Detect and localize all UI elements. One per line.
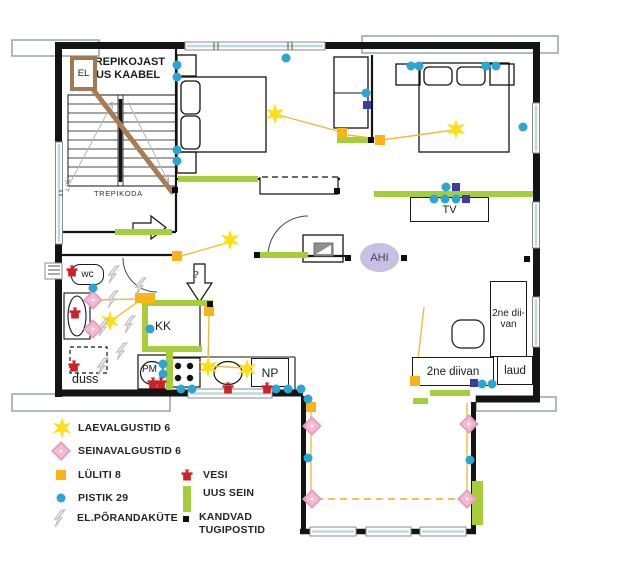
legend-new-wall-icon [183, 486, 191, 512]
sofa-bottom: 2ne diivan [412, 357, 494, 386]
room-label-kk: KK [155, 319, 171, 333]
legend-label-floor-heating: EL.PÕRANDAKÜTE [77, 512, 178, 525]
wiring-lines [97, 114, 467, 499]
stair-dimension: 4.85 [65, 179, 72, 192]
room-label-wc: wc [71, 264, 104, 285]
furniture [64, 55, 514, 390]
legend-label-new-wall: UUS SEIN [203, 487, 254, 500]
legend-label-posts: KANDVAD TUGIPOSTID [199, 511, 265, 537]
tv-cabinet: TV [410, 197, 489, 222]
legend-label-water: VESI [203, 469, 228, 482]
appliance-label-pm: PM [142, 364, 157, 375]
room-label-duss: duss [72, 372, 98, 386]
legend-label-ceiling-lights: LAEVALGUSTID 6 [78, 422, 170, 435]
sofa-side: 2ne dii- van [490, 281, 527, 357]
appliance-label-np: NP [251, 358, 289, 387]
legend-label-switches: LÜLITI 8 [78, 469, 121, 482]
floor-plan: TREPIKOJAST UUS KAABEL EL TREPIKODA 4.85… [0, 0, 634, 561]
table-laud: laud [497, 356, 533, 385]
question-mark: ? [193, 270, 199, 281]
new-walls [115, 137, 533, 525]
stove-ahi: AHI [360, 243, 399, 272]
room-label-trepikoda: TREPIKODA [94, 189, 143, 198]
legend-label-wall-lights: SEINAVALGUSTID 6 [78, 445, 181, 458]
legend-label-sockets: PISTIK 29 [78, 492, 128, 505]
electrical-panel: EL [70, 56, 97, 91]
new-cable-line [85, 79, 172, 192]
note-new-cable: TREPIKOJAST UUS KAABEL [88, 56, 165, 82]
